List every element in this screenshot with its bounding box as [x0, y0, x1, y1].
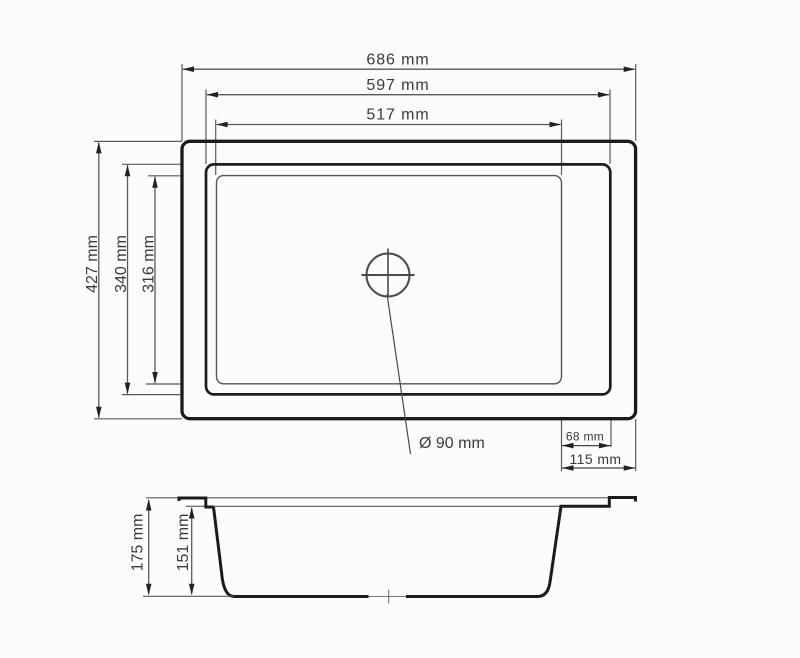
svg-text:340 mm: 340 mm — [113, 235, 130, 293]
svg-text:427 mm: 427 mm — [84, 235, 101, 293]
svg-text:151 mm: 151 mm — [175, 514, 192, 572]
svg-text:115 mm: 115 mm — [570, 451, 622, 467]
svg-text:316 mm: 316 mm — [140, 235, 157, 293]
svg-text:686 mm: 686 mm — [366, 52, 429, 69]
svg-text:517 mm: 517 mm — [366, 107, 429, 124]
svg-text:597 mm: 597 mm — [366, 77, 429, 94]
svg-text:68 mm: 68 mm — [566, 430, 604, 444]
svg-text:175 mm: 175 mm — [129, 514, 146, 572]
svg-text:Ø 90 mm: Ø 90 mm — [419, 435, 485, 452]
